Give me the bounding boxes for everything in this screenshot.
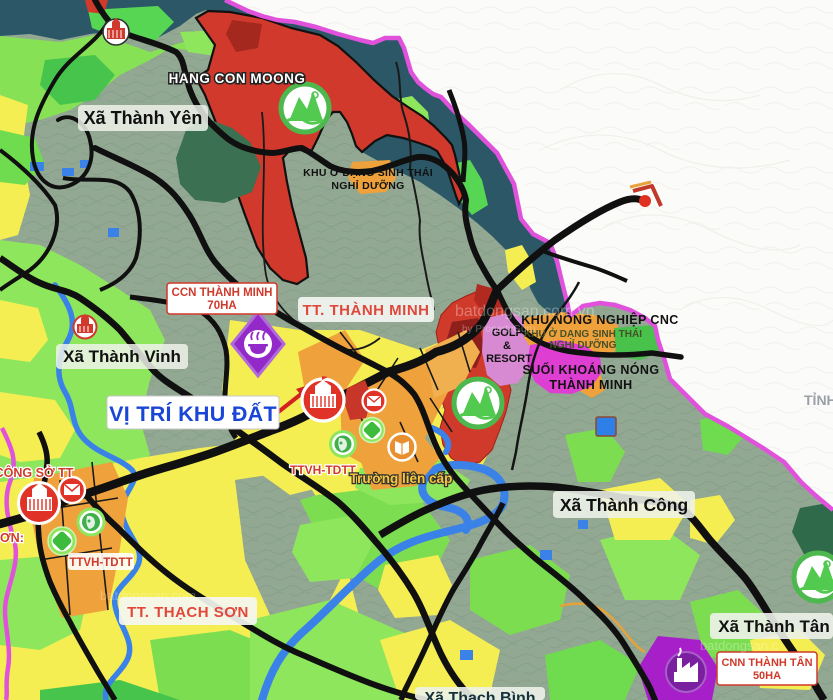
svg-text:batdongsan.c: batdongsan.c <box>700 638 779 653</box>
svg-text:SUỐI KHOÁNG NÓNG: SUỐI KHOÁNG NÓNG <box>523 362 660 377</box>
svg-text:NGHỈ DƯỠNG: NGHỈ DƯỠNG <box>550 338 617 351</box>
svg-text:&: & <box>503 340 511 352</box>
svg-text:Xã Thạch Bình: Xã Thạch Bình <box>424 690 535 700</box>
svg-text:CCN THÀNH MINH: CCN THÀNH MINH <box>172 286 273 299</box>
svg-text:50HA: 50HA <box>753 670 781 682</box>
svg-text:Xã Thành Công: Xã Thành Công <box>560 495 688 515</box>
svg-text:NGHỈ DƯỠNG: NGHỈ DƯỠNG <box>331 179 404 192</box>
svg-text:TTVH-TDTT: TTVH-TDTT <box>290 463 357 477</box>
svg-text:THÀNH MINH: THÀNH MINH <box>549 377 632 392</box>
svg-text:TT. THÀNH MINH: TT. THÀNH MINH <box>303 302 430 319</box>
svg-text:by PropertyGuru: by PropertyGuru <box>462 324 535 335</box>
svg-text:TTVH-TDTT: TTVH-TDTT <box>69 557 132 569</box>
svg-text:CNN THÀNH TÂN: CNN THÀNH TÂN <box>721 656 812 669</box>
svg-text:TỈNH: TỈNH <box>804 392 833 408</box>
svg-text:Xã Thành Vinh: Xã Thành Vinh <box>63 347 181 366</box>
svg-text:batdongsan.com: batdongsan.com <box>100 588 196 603</box>
svg-text:batdongsan.com.vn: batdongsan.com.vn <box>455 303 595 320</box>
svg-text:ƠN:: ƠN: <box>0 531 24 545</box>
svg-text:HANG CON MOONG: HANG CON MOONG <box>169 71 306 86</box>
svg-text:KHU Ở DẠNG SINH THÁI: KHU Ở DẠNG SINH THÁI <box>524 327 642 340</box>
svg-text:VỊ TRÍ KHU ĐẤT: VỊ TRÍ KHU ĐẤT <box>109 401 277 426</box>
svg-text:70HA: 70HA <box>207 300 236 312</box>
svg-text:Xã Thành Tân: Xã Thành Tân <box>718 617 829 636</box>
svg-text:Trường liên cấp: Trường liên cấp <box>350 471 453 486</box>
svg-text:TT. THẠCH SƠN: TT. THẠCH SƠN <box>127 604 249 621</box>
svg-text:Xã Thành Yên: Xã Thành Yên <box>84 108 203 128</box>
svg-text:CÔNG SỞ TT: CÔNG SỞ TT <box>0 465 74 480</box>
svg-text:KHU Ở DẠNG SINH THÁI: KHU Ở DẠNG SINH THÁI <box>303 166 433 179</box>
